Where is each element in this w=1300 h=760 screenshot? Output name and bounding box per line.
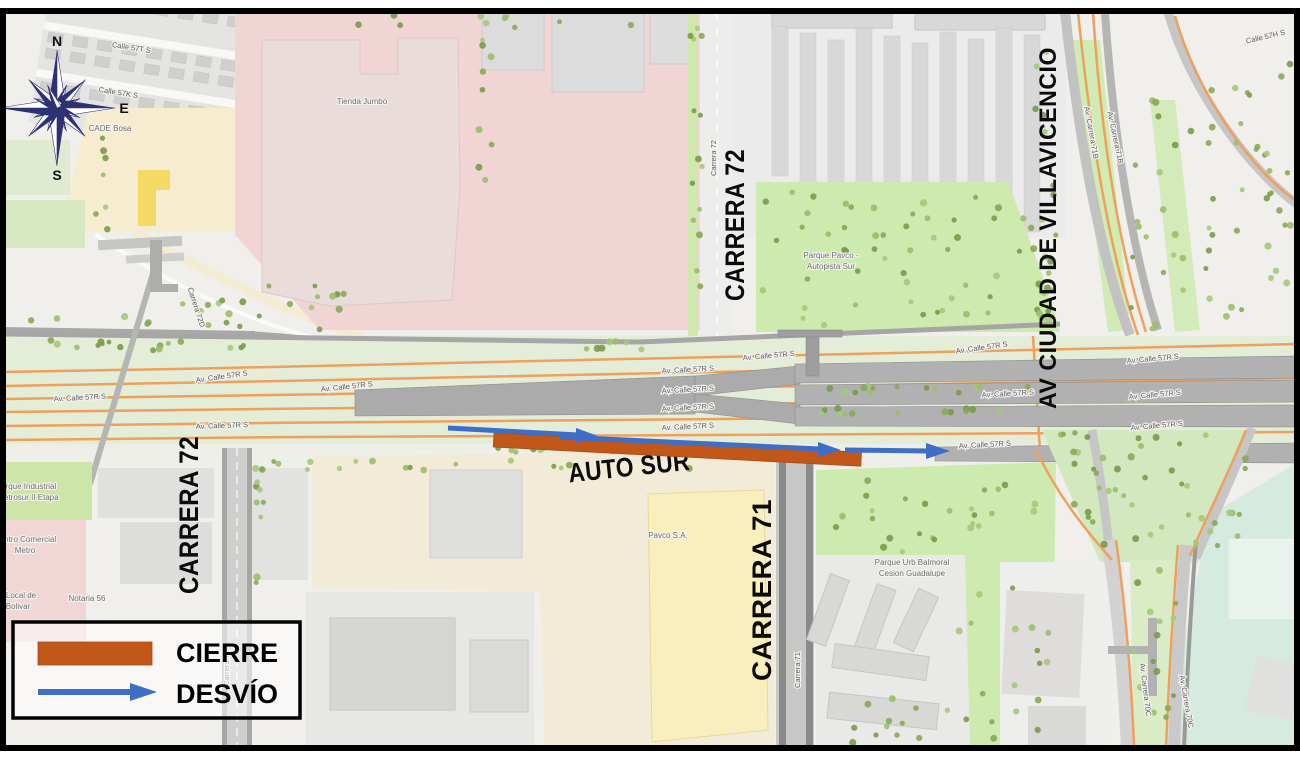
tree-dot	[763, 198, 769, 204]
tree-dot	[873, 732, 878, 737]
tree-dot	[976, 523, 982, 529]
tree-dot	[397, 22, 403, 28]
tree-dot	[848, 204, 854, 210]
building	[168, 67, 184, 79]
tree-dot	[1226, 509, 1233, 516]
tree-dot	[1148, 532, 1154, 538]
place-label: Centro Comercial	[0, 535, 56, 544]
tree-dot	[968, 621, 973, 626]
tree-dot	[852, 390, 858, 396]
tree-dot	[834, 405, 841, 412]
tree-dot	[1121, 493, 1126, 498]
building	[119, 60, 135, 72]
tree-dot	[612, 338, 618, 344]
tree-dot	[93, 211, 99, 217]
tree-dot	[1209, 124, 1216, 131]
tree-dot	[483, 20, 490, 27]
carrera-71-road-edge	[806, 452, 813, 748]
building	[104, 0, 120, 9]
tree-dot	[865, 701, 872, 708]
tree-dot	[225, 310, 232, 317]
tree-dot	[910, 212, 915, 217]
tree-dot	[853, 302, 858, 307]
tree-dot	[884, 724, 890, 730]
tree-dot	[337, 466, 342, 471]
tree-dot	[903, 496, 908, 501]
tree-dot	[842, 411, 848, 417]
tree-dot	[801, 316, 806, 321]
tree-dot	[864, 477, 871, 484]
place-label: Tienda Jumbo	[337, 97, 388, 106]
tree-dot	[117, 344, 123, 350]
street-label: Carrera 71	[793, 652, 802, 688]
tree-dot	[956, 390, 962, 396]
tree-dot	[305, 467, 310, 472]
tree-dot	[867, 390, 872, 395]
tree-dot	[329, 293, 336, 300]
tree-dot	[995, 204, 1002, 211]
tree-dot	[1169, 467, 1175, 473]
tree-dot	[1156, 567, 1163, 574]
tree-dot	[257, 487, 263, 493]
tree-dot	[931, 235, 937, 241]
tree-dot	[54, 341, 61, 348]
tree-dot	[1130, 255, 1135, 260]
tree-dot	[266, 284, 271, 289]
tree-dot	[1129, 305, 1134, 310]
tree-dot	[886, 535, 893, 542]
tree-dot	[1276, 207, 1283, 214]
tree-dot	[1028, 225, 1034, 231]
tree-dot	[584, 346, 590, 352]
building	[138, 97, 154, 109]
tree-dot	[1269, 190, 1274, 195]
tree-dot	[900, 721, 905, 726]
tree-dot	[258, 515, 263, 520]
tree-dot	[219, 298, 225, 304]
tree-dot	[692, 108, 697, 113]
tree-dot	[969, 506, 974, 511]
tree-dot	[833, 524, 839, 530]
building	[45, 48, 61, 60]
tree-dot	[1193, 541, 1199, 547]
tree-dot	[1171, 615, 1177, 621]
tree-dot	[900, 549, 905, 554]
tree-dot	[336, 306, 343, 313]
tree-dot	[963, 311, 970, 318]
tree-dot	[150, 347, 156, 353]
tree-dot	[870, 508, 875, 513]
building	[171, 52, 187, 64]
tree-dot	[1242, 455, 1249, 462]
tree-dot	[969, 406, 976, 413]
tree-dot	[1061, 432, 1066, 437]
tree-dot	[309, 305, 315, 311]
tree-dot	[841, 389, 848, 396]
building	[69, 52, 85, 64]
tree-dot	[945, 708, 950, 713]
building	[772, 26, 788, 176]
tree-dot	[254, 479, 260, 485]
tree-dot	[54, 315, 61, 322]
building	[218, 75, 234, 87]
tree-dot	[989, 511, 995, 517]
tree-dot	[512, 25, 517, 30]
tree-dot	[287, 301, 293, 307]
tree-dot	[993, 273, 1000, 280]
place-label: Local de	[6, 591, 37, 600]
tree-dot	[239, 298, 246, 305]
tree-dot	[882, 256, 887, 261]
pedestrian-bridge	[150, 284, 178, 292]
tree-dot	[821, 322, 827, 328]
building	[195, 56, 211, 68]
tree-dot	[696, 231, 703, 238]
tree-dot	[826, 385, 833, 392]
building	[97, 40, 113, 52]
tree-dot	[1010, 585, 1015, 590]
tree-dot	[698, 113, 703, 118]
tree-dot	[836, 411, 842, 417]
tree-dot	[606, 338, 613, 345]
tree-dot	[908, 299, 913, 304]
tree-dot	[1180, 255, 1187, 262]
tree-dot	[1129, 502, 1134, 507]
tree-dot	[990, 735, 997, 742]
tree-dot	[870, 516, 876, 522]
tree-dot	[1035, 727, 1041, 733]
tree-dot	[932, 537, 938, 543]
tree-dot	[889, 695, 896, 702]
tree-dot	[624, 340, 629, 345]
place-label: Parque Pavco -	[803, 251, 858, 260]
building	[470, 640, 528, 712]
tree-dot	[1177, 441, 1182, 446]
tree-dot	[991, 215, 997, 221]
tree-dot	[1134, 579, 1141, 586]
tree-dot	[241, 343, 246, 348]
tree-dot	[1013, 708, 1019, 714]
tree-dot	[1147, 609, 1154, 616]
tree-dot	[104, 226, 110, 232]
tree-dot	[920, 312, 926, 318]
tree-dot	[872, 246, 878, 252]
tree-dot	[101, 172, 106, 177]
tree-dot	[880, 544, 887, 551]
tree-dot	[1282, 222, 1287, 227]
tree-dot	[252, 465, 259, 472]
tree-dot	[479, 42, 486, 49]
place-label: Metrosur II Etapa	[0, 493, 59, 502]
tree-dot	[963, 408, 969, 414]
tree-dot	[353, 459, 358, 464]
tree-dot	[917, 531, 922, 536]
tree-dot	[690, 181, 695, 186]
tree-dot	[956, 627, 963, 634]
tree-dot	[1232, 85, 1239, 92]
tree-dot	[945, 247, 950, 252]
tree-dot	[1264, 195, 1270, 201]
building	[482, 12, 544, 70]
tree-dot	[1188, 128, 1195, 135]
building	[912, 43, 928, 198]
place-label: Metro	[15, 546, 36, 555]
tree-dot	[1172, 231, 1179, 238]
carrera-72-south-label: CARRERA 72	[174, 436, 204, 594]
tree-dot	[1243, 466, 1248, 471]
building	[430, 470, 522, 558]
tree-dot	[1180, 287, 1186, 293]
tree-dot	[313, 284, 318, 289]
tree-dot	[1207, 226, 1212, 231]
tree-dot	[488, 53, 495, 60]
tree-dot	[102, 155, 108, 161]
tree-dot	[103, 204, 108, 209]
tree-dot	[1206, 247, 1212, 253]
building	[915, 14, 1045, 30]
tree-dot	[922, 501, 928, 507]
building	[72, 36, 88, 48]
tree-dot	[257, 314, 262, 319]
tree-dot	[1020, 215, 1026, 221]
tree-dot	[996, 487, 1002, 493]
tree-dot	[1239, 307, 1244, 312]
building	[193, 71, 209, 83]
tree-dot	[254, 500, 260, 506]
tree-dot	[967, 524, 974, 531]
tree-dot	[180, 301, 185, 306]
tree-dot	[1255, 144, 1261, 150]
tree-dot	[1209, 232, 1215, 238]
tree-dot	[1152, 321, 1159, 328]
tree-dot	[1163, 714, 1169, 720]
tree-dot	[694, 268, 700, 274]
tree-dot	[1131, 649, 1136, 654]
av-villavicencio-label: AV CIUDAD DE VILLAVICENCIO	[1035, 47, 1062, 409]
tree-dot	[1287, 61, 1294, 68]
tree-dot	[1097, 485, 1102, 490]
tree-dot	[872, 232, 879, 239]
tree-dot	[982, 487, 987, 492]
tree-dot	[1273, 268, 1279, 274]
tree-dot	[998, 407, 1003, 412]
tree-dot	[1138, 443, 1144, 449]
tree-dot	[1071, 461, 1077, 467]
tree-dot	[1161, 270, 1166, 275]
tree-dot	[924, 385, 930, 391]
tree-dot	[1165, 705, 1171, 711]
tree-dot	[954, 234, 961, 241]
tree-dot	[760, 287, 766, 293]
tree-dot	[598, 345, 605, 352]
tree-dot	[1156, 169, 1163, 176]
tree-dot	[1132, 535, 1139, 542]
tree-dot	[420, 467, 427, 474]
tree-dot	[1084, 434, 1090, 440]
building	[220, 59, 236, 71]
tree-dot	[1085, 509, 1092, 516]
place-label: Pavco S.A.	[648, 531, 688, 540]
tree-dot	[1240, 187, 1245, 192]
tree-dot	[480, 68, 486, 74]
tree-dot	[842, 225, 848, 231]
tree-dot	[205, 302, 211, 308]
tree-dot	[1179, 482, 1184, 487]
tree-dot	[1152, 99, 1159, 106]
tree-dot	[1128, 453, 1135, 460]
tree-dot	[952, 217, 957, 222]
tree-dot	[1136, 435, 1142, 441]
tree-dot	[903, 223, 909, 229]
tree-dot	[1234, 228, 1240, 234]
tree-dot	[894, 384, 899, 389]
tree-dot	[901, 270, 907, 276]
tree-dot	[1264, 151, 1270, 157]
tree-dot	[480, 38, 485, 43]
place-label: CADE Bosa	[89, 124, 132, 133]
building	[650, 12, 692, 64]
tree-dot	[805, 276, 811, 282]
tree-dot	[904, 279, 911, 286]
tree-dot	[317, 327, 323, 333]
tree-dot	[985, 311, 990, 316]
tree-dot	[1172, 142, 1179, 149]
tree-dot	[1157, 618, 1163, 624]
tree-dot	[1072, 430, 1077, 435]
tree-dot	[1287, 222, 1294, 229]
tree-dot	[860, 384, 867, 391]
tree-dot	[1206, 140, 1212, 146]
tree-dot	[1264, 243, 1271, 250]
tree-dot	[849, 410, 855, 416]
tree-dot	[1031, 501, 1038, 508]
tree-dot	[1155, 113, 1161, 119]
tree-dot	[896, 411, 901, 416]
tree-dot	[28, 317, 34, 323]
tree-dot	[1029, 624, 1036, 631]
tree-dot	[1045, 630, 1051, 636]
tree-dot	[121, 313, 128, 320]
tree-dot	[489, 142, 495, 148]
parque-industrial-area	[0, 462, 92, 520]
tree-dot	[972, 512, 978, 518]
building	[144, 64, 160, 76]
tree-dot	[1035, 648, 1041, 654]
tree-dot	[513, 449, 518, 454]
tree-dot	[871, 205, 878, 212]
tree-dot	[107, 340, 112, 345]
tree-dot	[947, 508, 953, 514]
tree-dot	[355, 21, 362, 28]
place-label: Parque Industrial	[0, 482, 56, 491]
tree-dot	[1173, 601, 1178, 606]
tree-dot	[907, 247, 913, 253]
tree-dot	[802, 305, 808, 311]
tree-dot	[1012, 626, 1019, 633]
tree-dot	[1184, 483, 1190, 489]
tree-dot	[1134, 219, 1140, 225]
building	[772, 14, 892, 28]
building	[94, 56, 110, 68]
tree-dot	[687, 33, 693, 39]
tree-dot	[935, 310, 940, 315]
tree-dot	[1012, 682, 1018, 688]
tree-dot	[1160, 206, 1167, 213]
compass-s-label: S	[52, 167, 61, 183]
tree-dot	[1144, 234, 1149, 239]
tree-dot	[980, 691, 986, 697]
tree-dot	[480, 87, 486, 93]
tree-dot	[1114, 466, 1121, 473]
tree-dot	[1285, 170, 1290, 175]
tree-dot	[933, 387, 938, 392]
tree-dot	[1228, 304, 1235, 311]
tree-dot	[476, 126, 483, 133]
tree-dot	[1210, 196, 1216, 202]
tree-dot	[1186, 512, 1191, 517]
tree-dot	[804, 210, 810, 216]
building	[1001, 590, 1084, 698]
tienda-jumbo-building	[262, 38, 460, 306]
tree-dot	[1105, 488, 1111, 494]
tree-dot	[502, 15, 508, 21]
map-layers: Calle 57T SCalle 57K SCarrera 72Carrera …	[0, 0, 1300, 748]
tree-dot	[1100, 455, 1107, 462]
building	[79, 0, 95, 5]
tree-dot	[1278, 73, 1284, 79]
tree-dot	[259, 466, 264, 471]
tree-dot	[1283, 279, 1290, 286]
tree-dot	[800, 225, 805, 230]
tree-dot	[315, 294, 320, 299]
tree-dot	[691, 218, 696, 223]
tree-dot	[1153, 434, 1160, 441]
tree-dot	[699, 33, 705, 39]
tree-dot	[988, 294, 993, 299]
tree-dot	[913, 705, 919, 711]
building	[180, 0, 196, 5]
tree-dot	[1151, 659, 1156, 664]
green-verge	[688, 12, 698, 338]
tree-dot	[925, 215, 931, 221]
tree-dot	[1090, 519, 1096, 525]
tree-dot	[774, 238, 779, 243]
tree-dot	[557, 19, 562, 24]
building	[1228, 538, 1298, 620]
tree-dot	[699, 164, 704, 169]
legend-box: CIERRE DESVÍO	[13, 622, 300, 718]
tree-dot	[916, 735, 922, 741]
parque-pavco-area	[756, 182, 1060, 332]
pedestrian-bridge	[150, 240, 162, 286]
tree-dot	[1153, 668, 1160, 675]
tree-dot	[74, 345, 80, 351]
tree-dot	[1247, 92, 1252, 97]
tree-dot	[639, 346, 645, 352]
tree-dot	[1094, 470, 1100, 476]
map-canvas: Calle 57T SCalle 57K SCarrera 72Carrera …	[0, 0, 1300, 760]
building	[800, 33, 816, 196]
tree-dot	[1268, 275, 1274, 281]
building	[205, 0, 221, 8]
tree-dot	[275, 461, 281, 467]
tree-dot	[1203, 266, 1208, 271]
building	[1028, 706, 1086, 746]
compass-e-label: E	[119, 100, 128, 116]
tree-dot	[839, 513, 846, 520]
tree-dot	[1212, 520, 1218, 526]
tree-dot	[1223, 313, 1230, 320]
